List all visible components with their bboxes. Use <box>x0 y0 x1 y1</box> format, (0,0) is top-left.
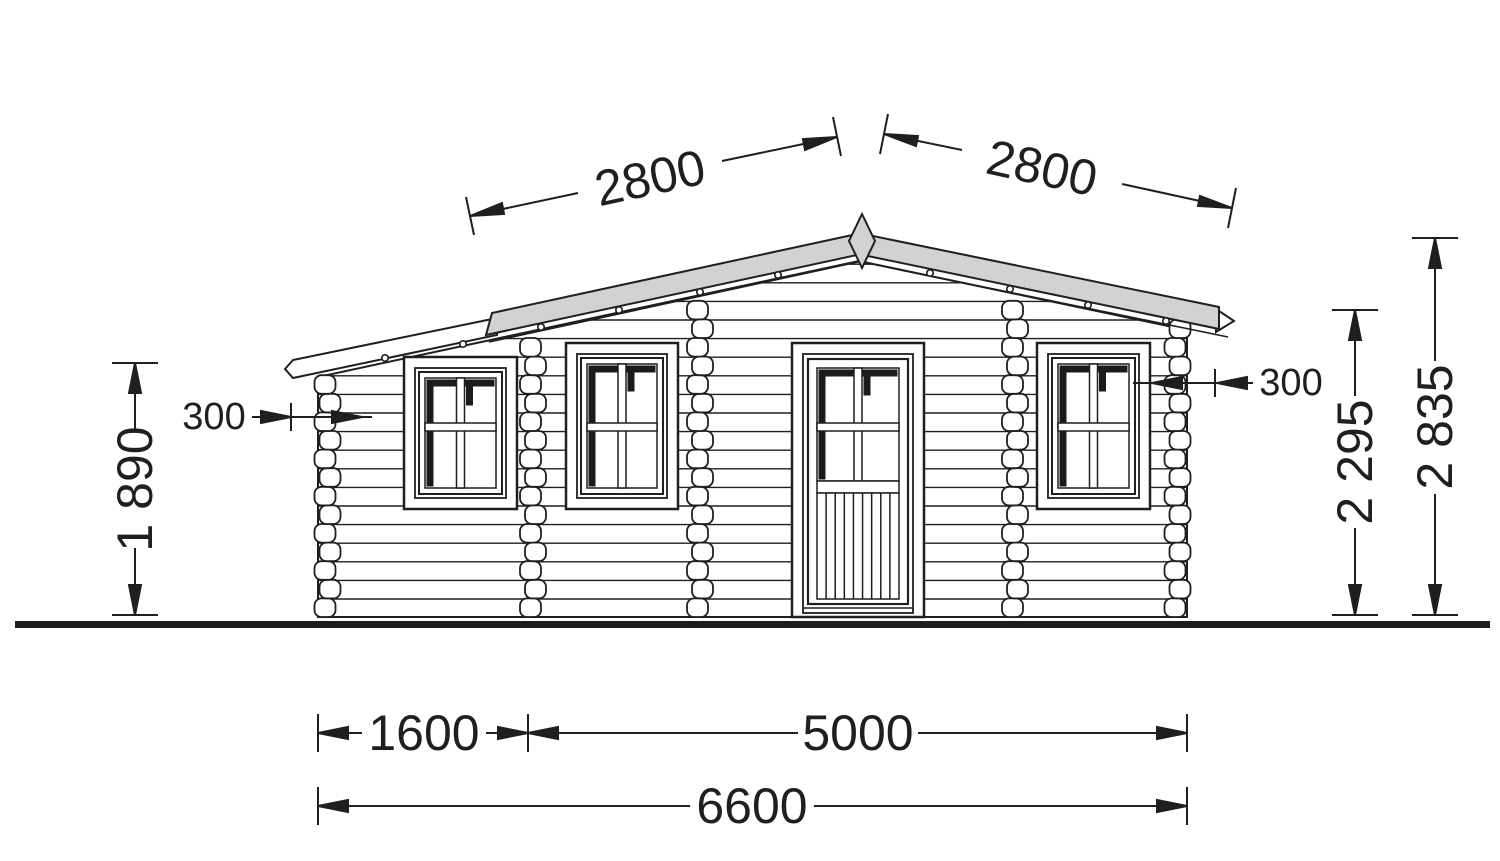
dim-total-width-label: 6600 <box>696 778 807 834</box>
dim-main-width-label: 5000 <box>802 705 913 761</box>
window-middle <box>566 343 678 509</box>
ground-line <box>15 621 1490 628</box>
dim-overhang-right-label: 300 <box>1259 362 1322 404</box>
dim-roof-slope-right-label: 2800 <box>982 129 1103 207</box>
dim-eave-height-right: 2 295 <box>1327 310 1383 615</box>
dim-overhang-left-label: 300 <box>182 396 245 438</box>
ridge-finial-diamond <box>849 214 875 268</box>
dim-eave-height-right-label: 2 295 <box>1327 399 1383 524</box>
dim-roof-slope-left: 2800 <box>466 117 841 235</box>
dim-roof-slope-left-label: 2800 <box>590 139 711 217</box>
dim-total-width: 6600 <box>318 778 1187 834</box>
door <box>792 343 924 617</box>
dim-ridge-height: 2 835 <box>1407 238 1463 615</box>
window-right <box>1037 343 1150 509</box>
dim-widths-row: 1600 5000 <box>318 705 1187 761</box>
dim-ridge-height-label: 2 835 <box>1407 364 1463 489</box>
front-elevation-drawing: 2800 2800 300 300 <box>0 0 1500 861</box>
dim-wall-height-left: 1 890 <box>107 363 163 615</box>
elevation-drawing-page: 2800 2800 300 300 <box>0 0 1500 861</box>
window-left <box>404 357 517 509</box>
dim-roof-slope-right: 2800 <box>880 114 1236 228</box>
dim-annex-width-label: 1600 <box>368 705 479 761</box>
dim-wall-height-left-label: 1 890 <box>107 426 163 551</box>
